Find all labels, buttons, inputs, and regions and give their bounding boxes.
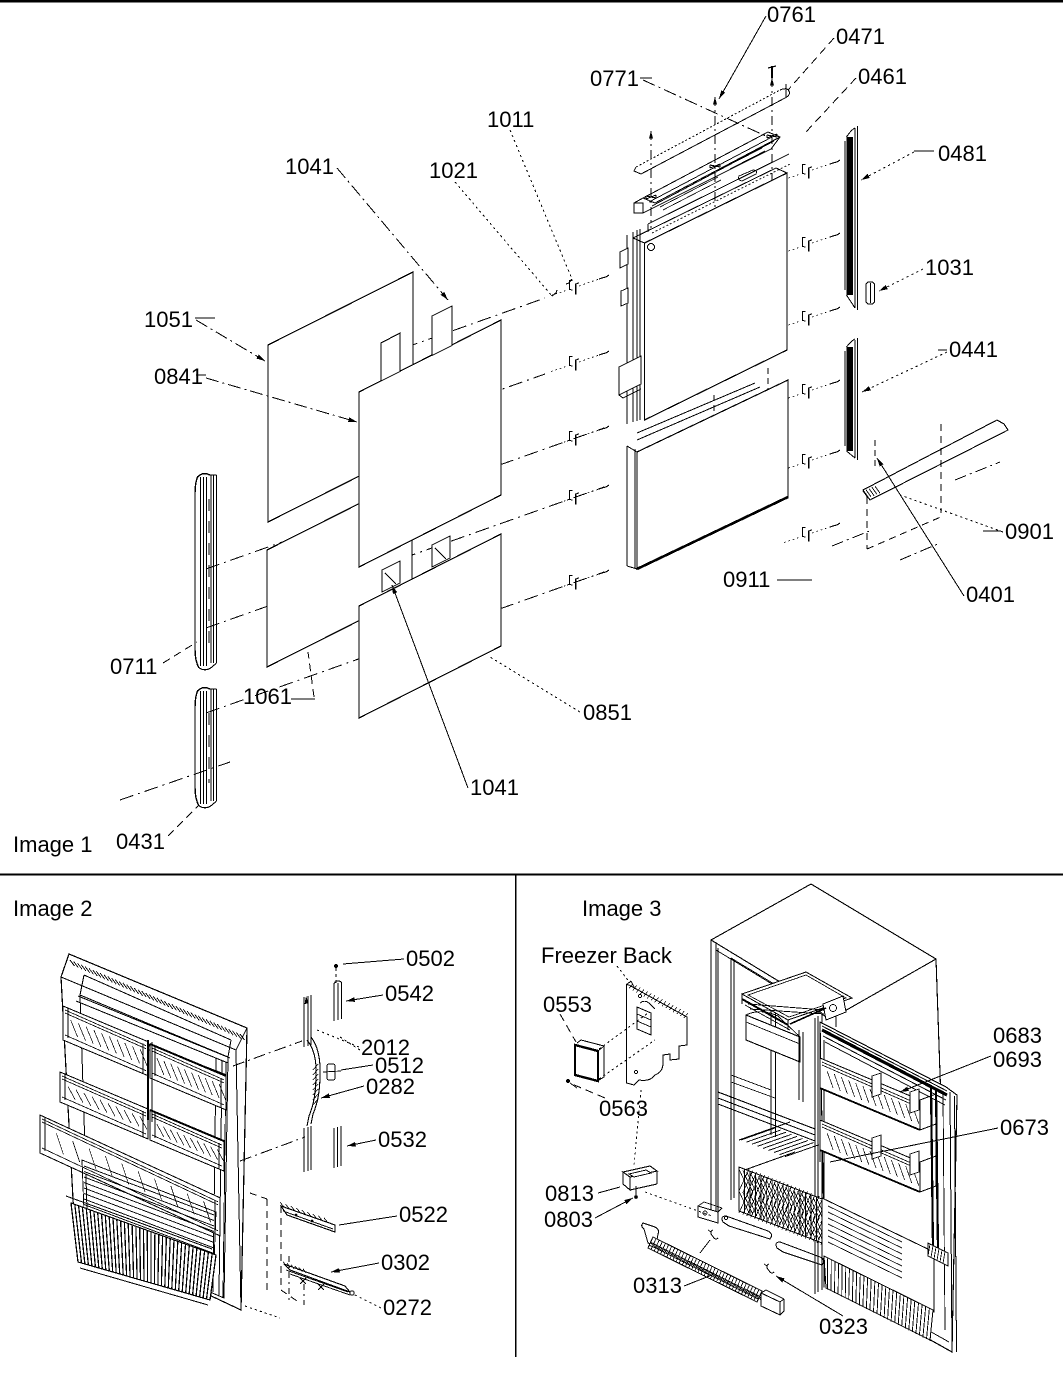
svg-text:1011: 1011: [487, 107, 534, 132]
svg-text:0761: 0761: [767, 2, 816, 27]
svg-text:0461: 0461: [858, 64, 907, 89]
svg-text:0532: 0532: [378, 1127, 427, 1152]
svg-text:0481: 0481: [938, 141, 987, 166]
svg-text:Image 2: Image 2: [13, 896, 93, 921]
svg-text:0471: 0471: [836, 24, 885, 49]
svg-text:0502: 0502: [406, 946, 455, 971]
svg-text:0272: 0272: [383, 1295, 432, 1320]
svg-text:Freezer Back: Freezer Back: [541, 943, 673, 968]
svg-text:Image 3: Image 3: [582, 896, 662, 921]
svg-text:1061: 1061: [243, 684, 292, 709]
svg-text:0522: 0522: [399, 1202, 448, 1227]
svg-text:0563: 0563: [599, 1096, 648, 1121]
svg-text:0323: 0323: [819, 1314, 868, 1339]
svg-text:Image 1: Image 1: [13, 832, 93, 857]
svg-text:0901: 0901: [1005, 519, 1054, 544]
svg-text:0683: 0683: [993, 1023, 1042, 1048]
svg-text:0911: 0911: [723, 567, 770, 592]
svg-text:1041: 1041: [285, 154, 334, 179]
svg-text:0441: 0441: [949, 337, 998, 362]
svg-text:1031: 1031: [925, 255, 974, 280]
svg-text:0282: 0282: [366, 1074, 415, 1099]
svg-text:0803: 0803: [544, 1207, 593, 1232]
svg-text:0711: 0711: [110, 654, 157, 679]
svg-text:0693: 0693: [993, 1047, 1042, 1072]
svg-text:0851: 0851: [583, 700, 632, 725]
svg-text:0673: 0673: [1000, 1115, 1049, 1140]
svg-text:0302: 0302: [381, 1250, 430, 1275]
svg-text:0542: 0542: [385, 981, 434, 1006]
svg-text:0401: 0401: [966, 582, 1015, 607]
svg-text:0431: 0431: [116, 829, 165, 854]
svg-text:1051: 1051: [144, 307, 193, 332]
svg-text:0553: 0553: [543, 992, 592, 1017]
svg-text:1021: 1021: [429, 158, 478, 183]
svg-text:0813: 0813: [545, 1181, 594, 1206]
svg-text:0841: 0841: [154, 364, 203, 389]
svg-text:0771: 0771: [590, 66, 639, 91]
svg-text:0313: 0313: [633, 1273, 682, 1298]
svg-text:1041: 1041: [470, 775, 519, 800]
